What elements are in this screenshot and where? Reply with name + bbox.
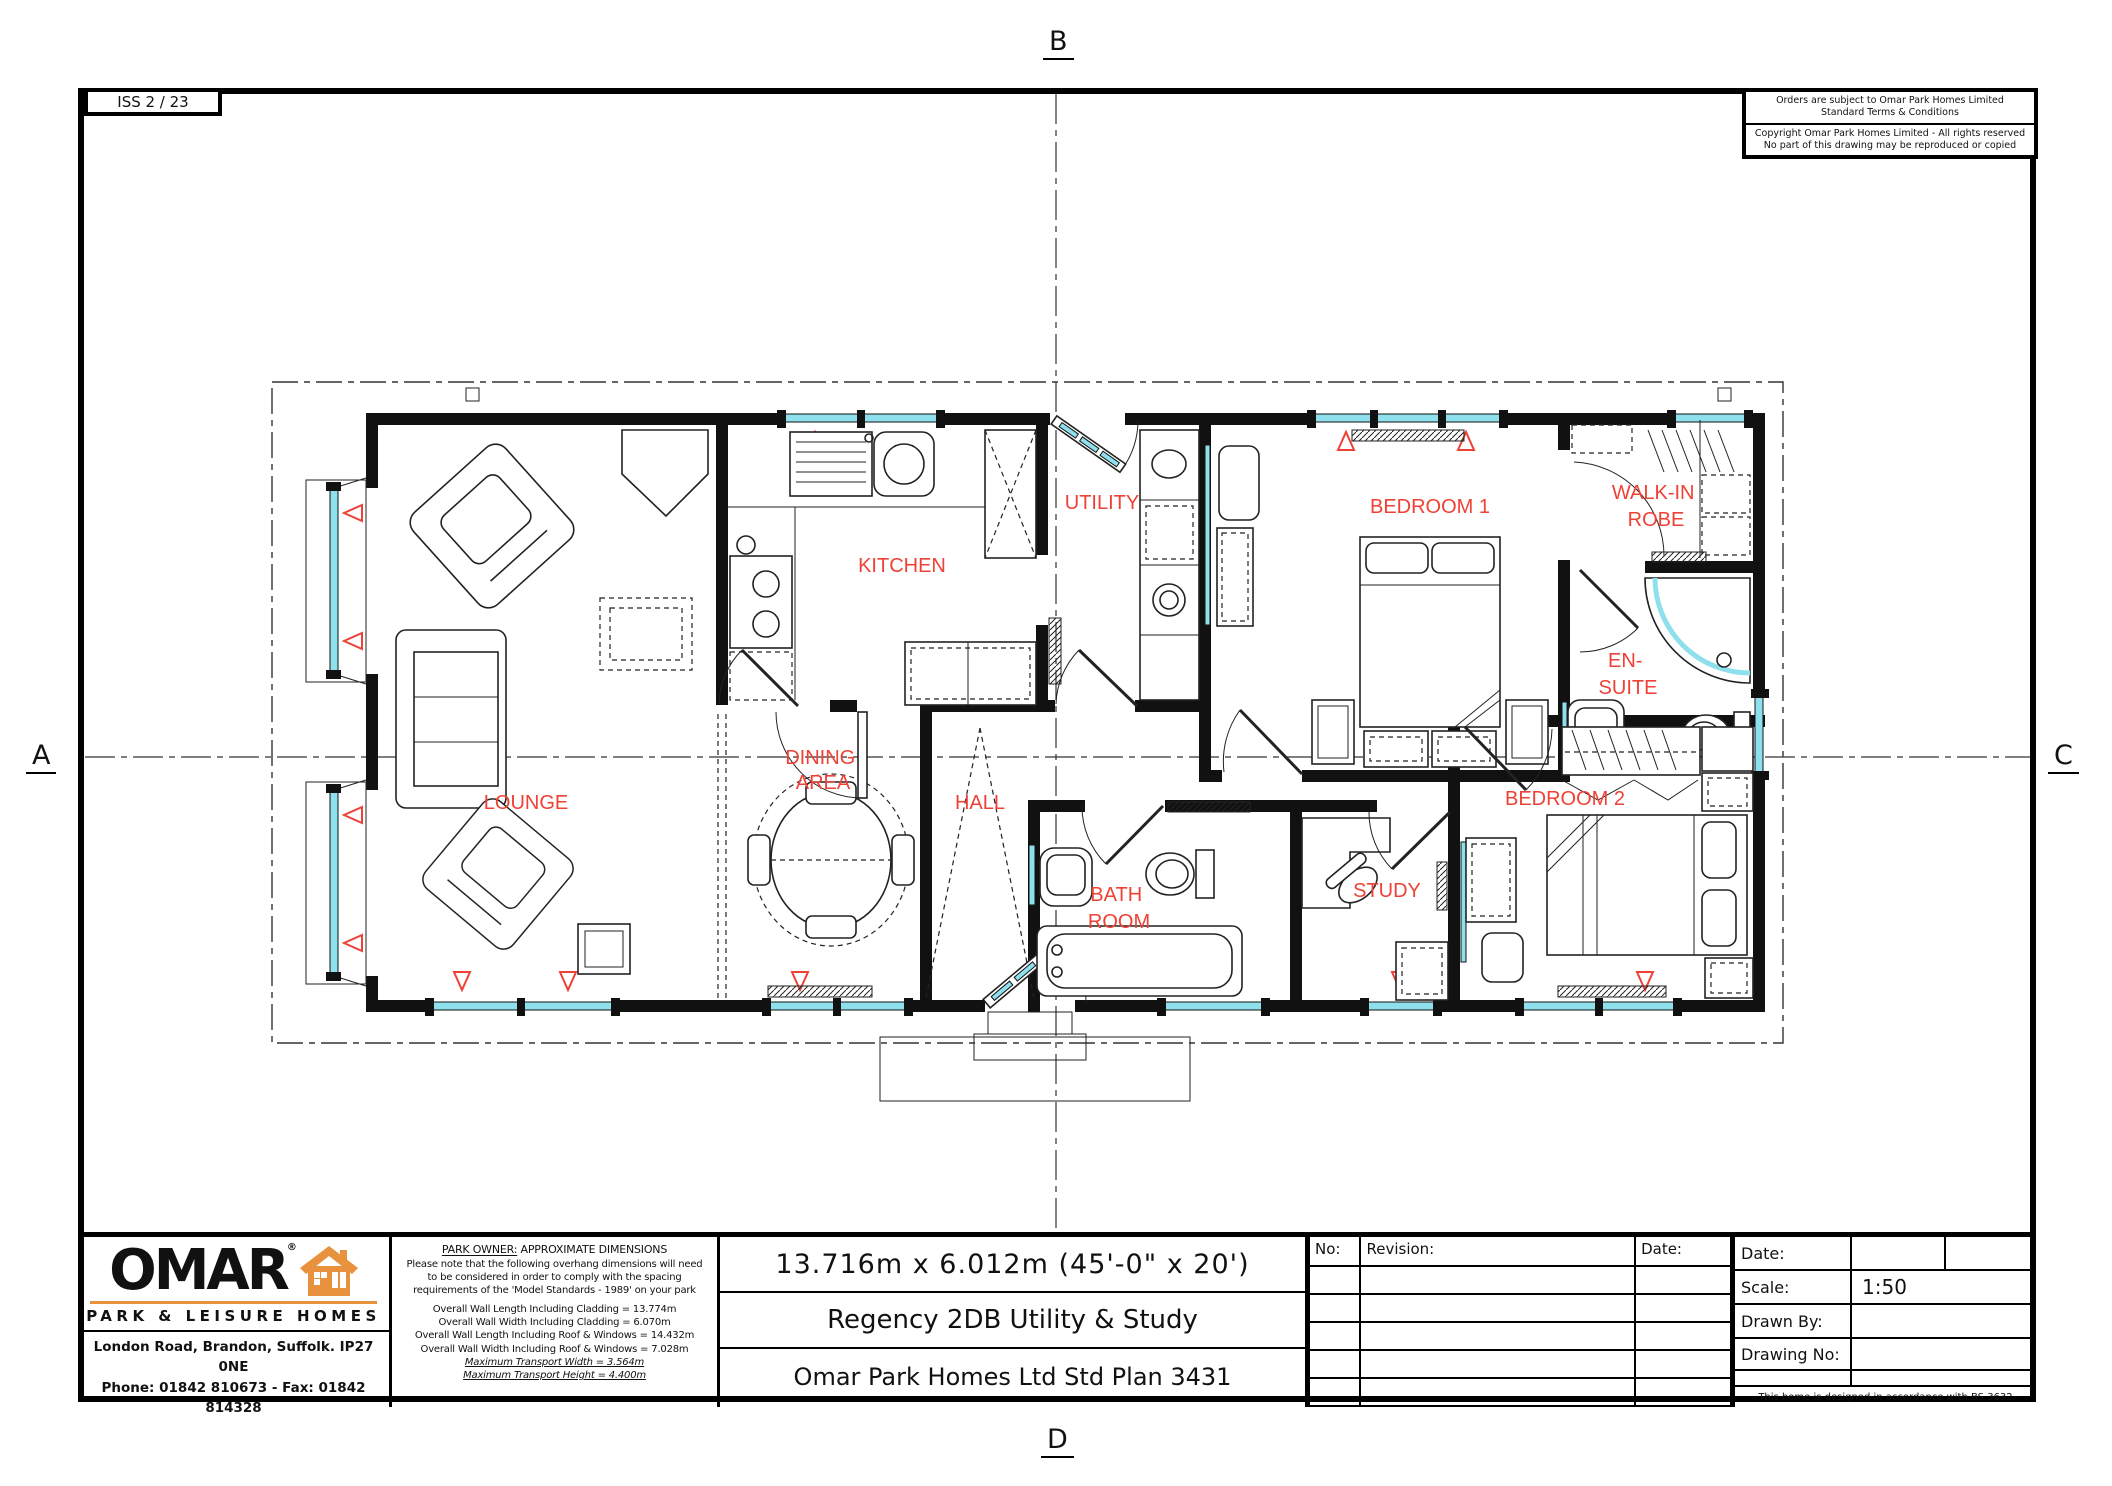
drawing-titles: 13.716m x 6.012m (45'-0" x 20') Regency … bbox=[720, 1237, 1310, 1407]
date-label: Date: bbox=[1735, 1237, 1852, 1269]
terms-copyright-box: Orders are subject to Omar Park Homes Li… bbox=[1742, 88, 2038, 159]
copyright-text: Copyright Omar Park Homes Limited - All … bbox=[1746, 123, 2034, 156]
date-subcell bbox=[1852, 1237, 1946, 1269]
issue-box: ISS 2 / 23 bbox=[84, 88, 222, 116]
drawing-no-label: Drawing No: bbox=[1735, 1339, 1852, 1369]
brand-logo: OMAR® bbox=[109, 1243, 294, 1299]
title-block: OMAR® PARK & LEISURE HOMES London Road, … bbox=[78, 1232, 2036, 1402]
park-owner-note: PARK OWNER: APPROXIMATE DIMENSIONS Pleas… bbox=[392, 1237, 720, 1407]
section-marker-bottom: D bbox=[1041, 1424, 1074, 1455]
revision-row bbox=[1310, 1351, 1730, 1379]
drawing-border bbox=[78, 88, 2036, 1402]
company-address: London Road, Brandon, Suffolk. IP27 0NE … bbox=[78, 1330, 389, 1418]
revision-col-revision: Revision: bbox=[1361, 1237, 1636, 1265]
logo-tagline: PARK & LEISURE HOMES bbox=[78, 1307, 389, 1325]
registered-mark: ® bbox=[287, 1242, 294, 1253]
drawn-by-label: Drawn By: bbox=[1735, 1305, 1852, 1337]
revision-row bbox=[1310, 1295, 1730, 1323]
scale-value: 1:50 bbox=[1852, 1275, 2036, 1299]
revision-row bbox=[1310, 1267, 1730, 1295]
logo-cell: OMAR® PARK & LEISURE HOMES London Road, … bbox=[78, 1237, 392, 1407]
revision-col-no: No: bbox=[1310, 1237, 1361, 1265]
revision-col-date: Date: bbox=[1636, 1237, 1730, 1265]
revision-row bbox=[1310, 1323, 1730, 1351]
plan-number: Omar Park Homes Ltd Std Plan 3431 bbox=[720, 1349, 1305, 1405]
overall-dimensions: 13.716m x 6.012m (45'-0" x 20') bbox=[720, 1237, 1305, 1293]
revision-table: No: Revision: Date: bbox=[1310, 1237, 1735, 1407]
model-name: Regency 2DB Utility & Study bbox=[720, 1293, 1305, 1349]
section-marker-right: C bbox=[2048, 740, 2079, 771]
terms-text: Orders are subject to Omar Park Homes Li… bbox=[1746, 92, 2034, 123]
issue-label: ISS 2 / 23 bbox=[117, 93, 188, 111]
drawing-sheet: .w{fill:#111;} .cy{fill:#8fe0ed;stroke:#… bbox=[0, 0, 2112, 1486]
house-icon bbox=[300, 1244, 358, 1298]
section-marker-top: B bbox=[1043, 26, 1074, 57]
scale-label: Scale: bbox=[1735, 1271, 1852, 1303]
section-marker-left: A bbox=[26, 740, 56, 771]
drawing-info: Date: Scale: 1:50 Drawn By: Drawing No: … bbox=[1735, 1237, 2036, 1407]
revision-row bbox=[1310, 1379, 1730, 1407]
standard-note: This home is designed in accordance with… bbox=[1735, 1387, 2036, 1407]
